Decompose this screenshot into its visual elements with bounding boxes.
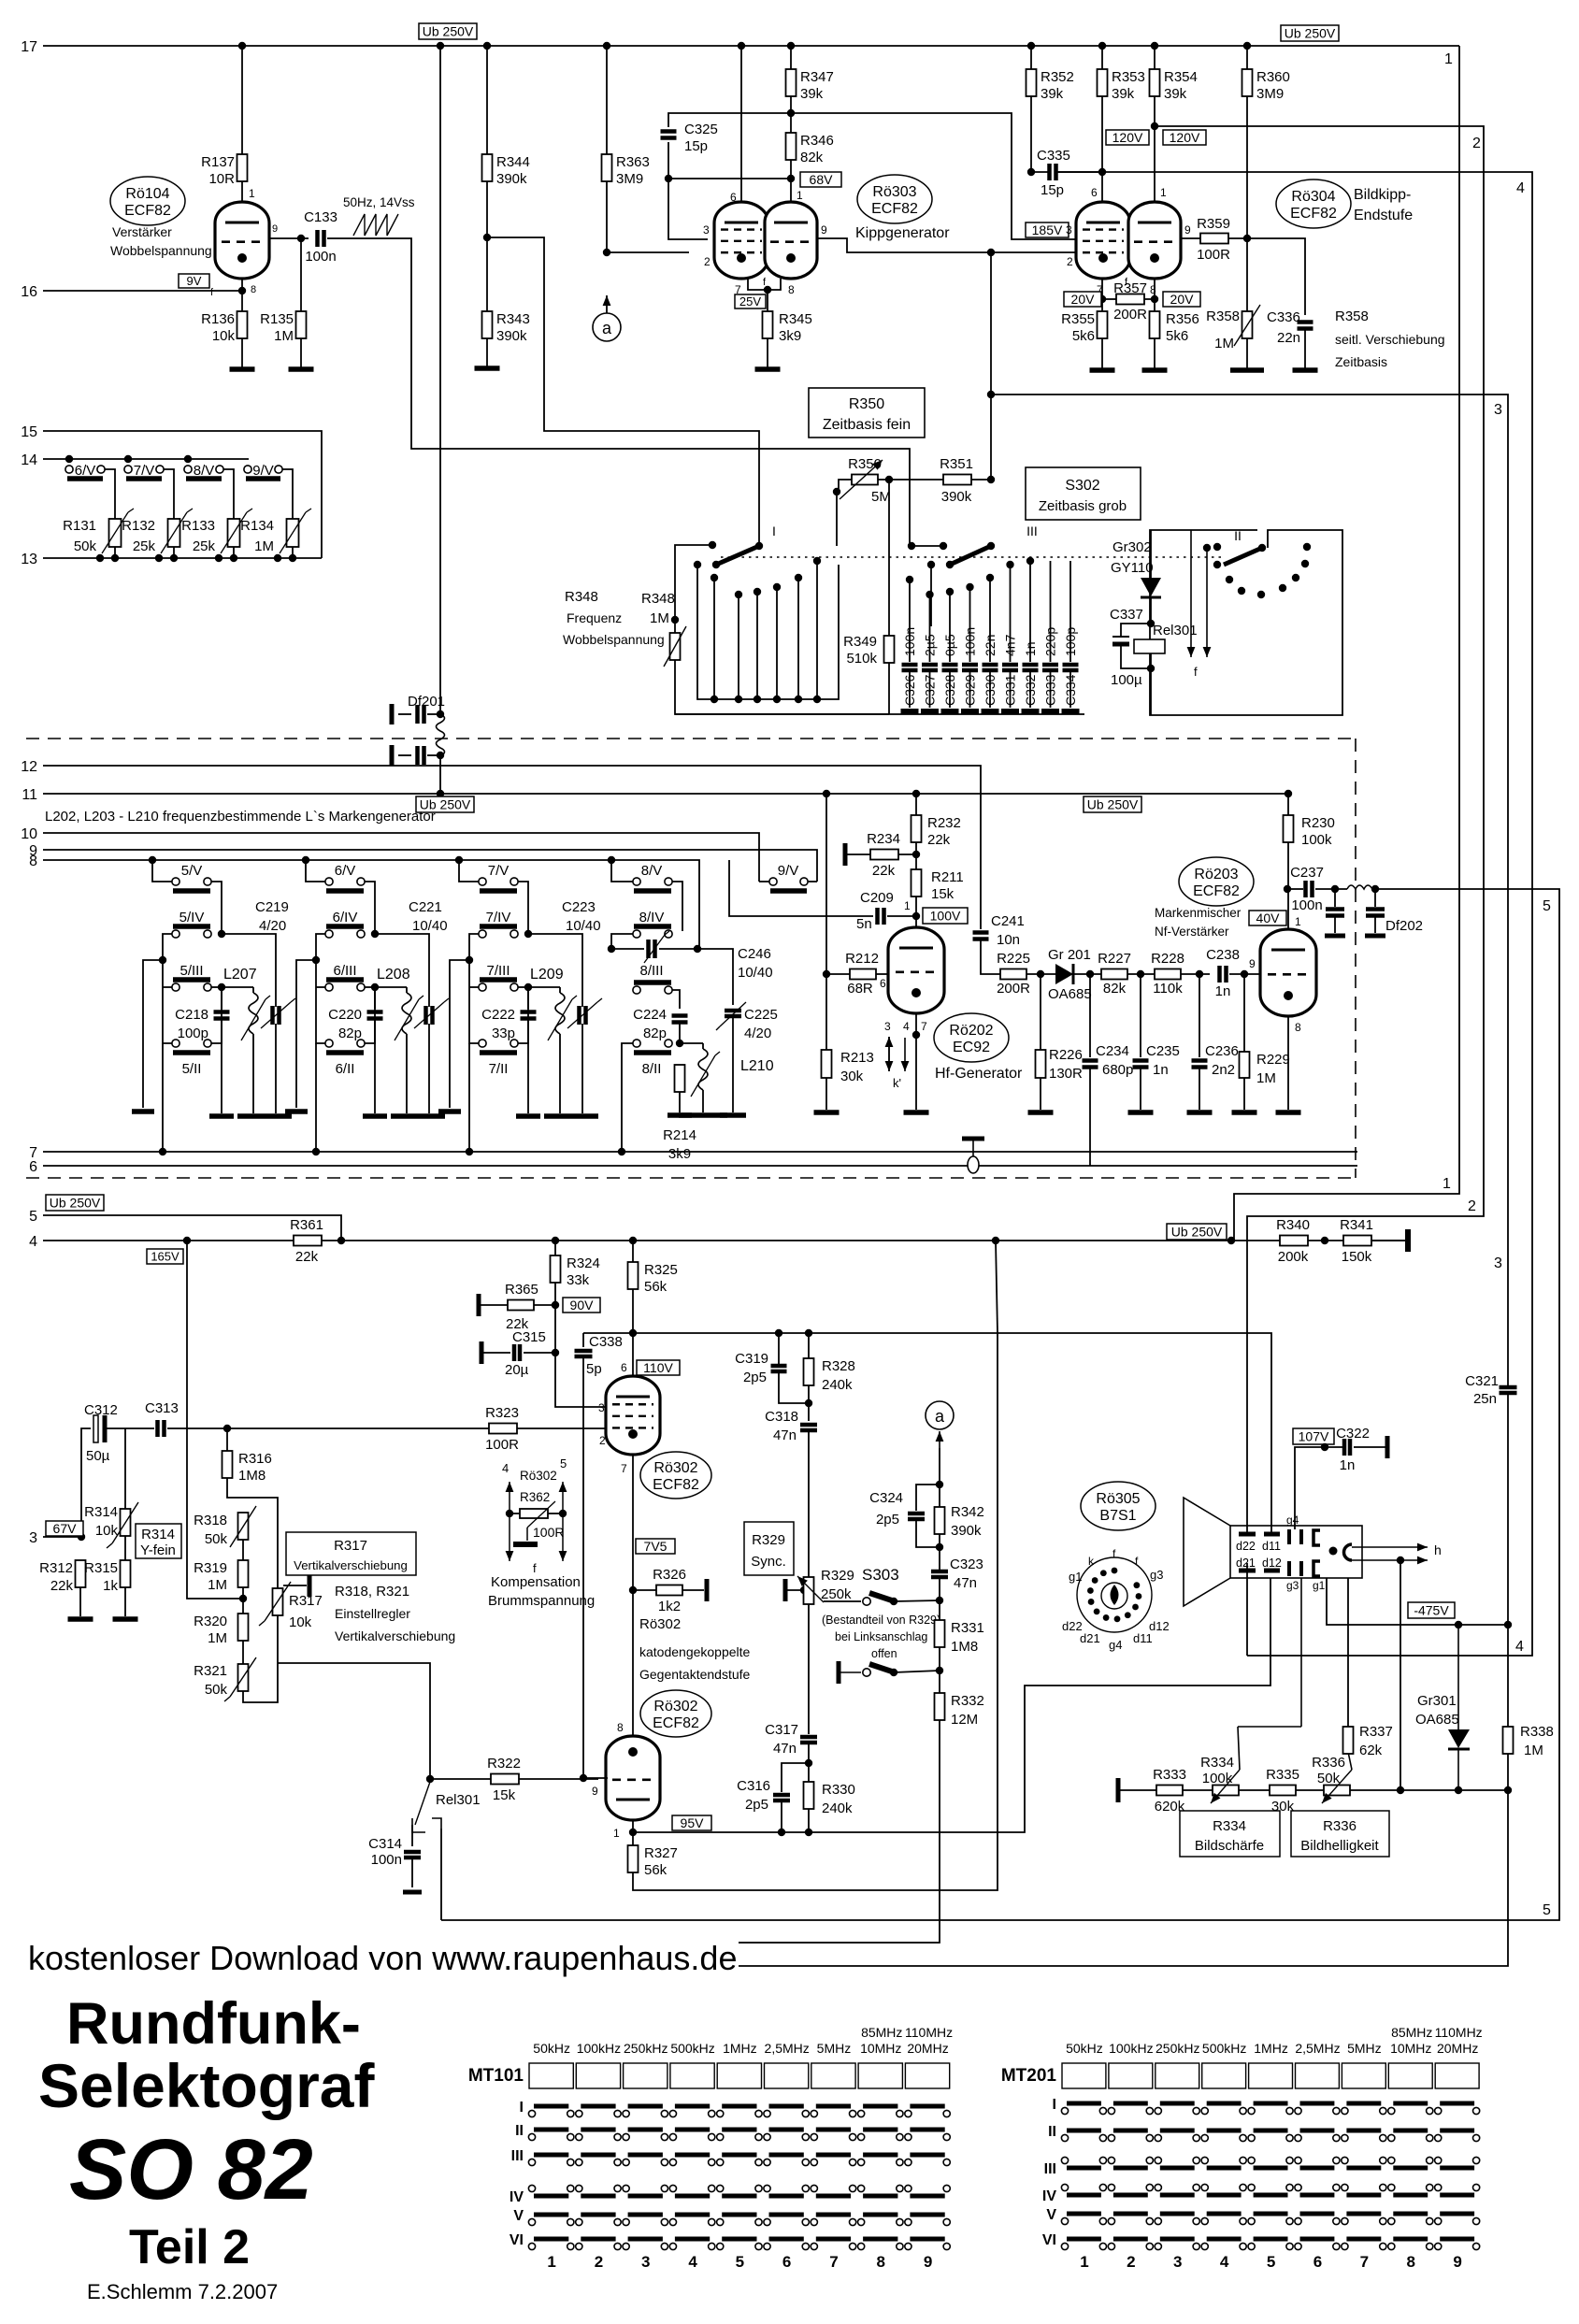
svg-text:33k: 33k bbox=[567, 1272, 590, 1288]
svg-text:7/V: 7/V bbox=[488, 863, 510, 879]
svg-text:Vertikalverschiebung: Vertikalverschiebung bbox=[294, 1558, 408, 1572]
svg-text:g1: g1 bbox=[1313, 1579, 1326, 1592]
svg-text:Brummspannung: Brummspannung bbox=[488, 1593, 595, 1609]
svg-text:R319: R319 bbox=[194, 1560, 227, 1576]
svg-text:III: III bbox=[1026, 524, 1038, 538]
svg-text:6: 6 bbox=[29, 1159, 37, 1175]
svg-text:50kHz: 50kHz bbox=[1066, 2041, 1103, 2056]
svg-text:100n: 100n bbox=[305, 249, 336, 265]
svg-text:R228: R228 bbox=[1151, 951, 1184, 967]
svg-text:100V: 100V bbox=[930, 909, 961, 924]
svg-text:C315: C315 bbox=[512, 1329, 546, 1345]
svg-text:7: 7 bbox=[829, 2253, 838, 2271]
svg-text:Gr 201: Gr 201 bbox=[1048, 947, 1091, 963]
svg-text:1: 1 bbox=[1444, 51, 1453, 67]
svg-text:VI: VI bbox=[1042, 2232, 1056, 2248]
svg-text:C235: C235 bbox=[1146, 1043, 1180, 1059]
svg-text:9/V: 9/V bbox=[778, 863, 799, 879]
svg-text:C331: C331 bbox=[1003, 674, 1018, 706]
svg-text:50Hz, 14Vss: 50Hz, 14Vss bbox=[343, 195, 415, 209]
svg-text:120V: 120V bbox=[1170, 130, 1200, 145]
svg-text:5k6: 5k6 bbox=[1072, 328, 1095, 344]
svg-text:1n: 1n bbox=[1153, 1062, 1169, 1078]
svg-text:Bildhelligkeit: Bildhelligkeit bbox=[1300, 1838, 1379, 1854]
svg-text:25k: 25k bbox=[133, 538, 156, 554]
svg-text:R322: R322 bbox=[487, 1756, 521, 1772]
svg-text:1: 1 bbox=[1443, 1176, 1451, 1192]
svg-text:25k: 25k bbox=[193, 538, 216, 554]
svg-text:GY110: GY110 bbox=[1111, 560, 1154, 576]
svg-text:C222: C222 bbox=[481, 1007, 515, 1023]
svg-text:3: 3 bbox=[29, 1530, 37, 1546]
svg-text:9: 9 bbox=[1184, 223, 1191, 237]
svg-text:Rö303: Rö303 bbox=[872, 184, 916, 200]
svg-text:30k: 30k bbox=[840, 1069, 864, 1084]
svg-text:C246: C246 bbox=[738, 946, 771, 962]
svg-text:R134: R134 bbox=[240, 518, 274, 534]
svg-text:6: 6 bbox=[880, 977, 886, 990]
svg-text:L210: L210 bbox=[740, 1058, 774, 1074]
svg-text:C329: C329 bbox=[963, 674, 978, 706]
svg-text:9: 9 bbox=[272, 223, 278, 235]
svg-text:20MHz: 20MHz bbox=[907, 2041, 948, 2056]
svg-text:MT201: MT201 bbox=[1001, 2066, 1057, 2086]
svg-text:MT101: MT101 bbox=[468, 2066, 524, 2086]
svg-text:R358: R358 bbox=[1206, 308, 1240, 324]
svg-text:14: 14 bbox=[21, 452, 37, 468]
svg-text:C238: C238 bbox=[1206, 947, 1240, 963]
svg-text:5/V: 5/V bbox=[181, 863, 203, 879]
svg-text:E.Schlemm 7.2.2007: E.Schlemm 7.2.2007 bbox=[87, 2280, 278, 2303]
svg-text:5/IV: 5/IV bbox=[179, 910, 205, 925]
svg-text:50k: 50k bbox=[74, 538, 97, 554]
svg-text:C333: C333 bbox=[1043, 674, 1058, 706]
svg-text:C321: C321 bbox=[1465, 1373, 1499, 1389]
svg-text:100n: 100n bbox=[963, 627, 978, 656]
svg-text:2: 2 bbox=[1067, 255, 1073, 268]
svg-text:33p: 33p bbox=[492, 1026, 515, 1041]
svg-text:(Bestandteil von R329): (Bestandteil von R329) bbox=[822, 1614, 940, 1627]
svg-text:6/III: 6/III bbox=[333, 963, 356, 979]
svg-text:R212: R212 bbox=[845, 951, 879, 967]
svg-text:9: 9 bbox=[924, 2253, 932, 2271]
svg-text:100p: 100p bbox=[1063, 627, 1078, 656]
svg-text:bei Linksanschlag: bei Linksanschlag bbox=[835, 1630, 927, 1643]
svg-text:82k: 82k bbox=[800, 150, 824, 165]
svg-text:Df201: Df201 bbox=[408, 694, 445, 710]
svg-text:d11: d11 bbox=[1262, 1540, 1281, 1553]
svg-text:R315: R315 bbox=[84, 1560, 118, 1576]
svg-text:250kHz: 250kHz bbox=[1156, 2041, 1199, 2056]
svg-text:R333: R333 bbox=[1153, 1767, 1186, 1783]
svg-text:R359: R359 bbox=[1197, 216, 1230, 232]
svg-text:R345: R345 bbox=[779, 311, 812, 327]
svg-text:R329: R329 bbox=[752, 1532, 785, 1548]
svg-text:a: a bbox=[935, 1407, 945, 1426]
svg-text:1M: 1M bbox=[1524, 1743, 1543, 1758]
svg-text:R227: R227 bbox=[1098, 951, 1131, 967]
svg-text:50k: 50k bbox=[1317, 1771, 1341, 1786]
svg-text:Markenmischer: Markenmischer bbox=[1155, 906, 1242, 920]
svg-text:R344: R344 bbox=[496, 154, 530, 170]
svg-text:Frequenz: Frequenz bbox=[567, 610, 622, 625]
svg-text:R133: R133 bbox=[181, 518, 215, 534]
svg-text:1M: 1M bbox=[1214, 336, 1234, 351]
svg-text:5: 5 bbox=[1543, 898, 1551, 914]
svg-text:C330: C330 bbox=[983, 674, 998, 706]
svg-text:8/IV: 8/IV bbox=[639, 910, 665, 925]
svg-text:100n: 100n bbox=[1291, 897, 1322, 913]
svg-text:g3: g3 bbox=[1286, 1579, 1299, 1592]
svg-text:100R: 100R bbox=[533, 1525, 564, 1540]
svg-text:Teil 2: Teil 2 bbox=[129, 2220, 250, 2274]
svg-text:R357: R357 bbox=[1113, 280, 1147, 296]
svg-text:3: 3 bbox=[884, 1020, 891, 1033]
svg-text:10MHz: 10MHz bbox=[860, 2041, 901, 2056]
svg-text:Zeitbasis fein: Zeitbasis fein bbox=[823, 417, 911, 433]
svg-text:Rö304: Rö304 bbox=[1291, 189, 1335, 205]
svg-text:9: 9 bbox=[592, 1785, 598, 1798]
svg-text:68V: 68V bbox=[810, 172, 834, 187]
svg-text:L208: L208 bbox=[377, 967, 410, 983]
svg-text:1M8: 1M8 bbox=[951, 1639, 978, 1655]
svg-text:2: 2 bbox=[599, 1434, 606, 1447]
svg-text:1M: 1M bbox=[650, 610, 669, 626]
svg-text:R330: R330 bbox=[822, 1782, 855, 1798]
svg-text:C218: C218 bbox=[175, 1007, 208, 1023]
svg-text:R351: R351 bbox=[940, 456, 973, 472]
svg-text:15: 15 bbox=[21, 424, 37, 440]
svg-text:C223: C223 bbox=[562, 899, 596, 915]
svg-text:500kHz: 500kHz bbox=[670, 2041, 714, 2056]
svg-text:56k: 56k bbox=[644, 1279, 667, 1295]
svg-text:7: 7 bbox=[921, 1020, 927, 1033]
svg-text:R314: R314 bbox=[84, 1504, 118, 1520]
svg-text:I: I bbox=[772, 524, 776, 538]
svg-text:3M9: 3M9 bbox=[1256, 86, 1284, 102]
svg-text:500kHz: 500kHz bbox=[1202, 2041, 1246, 2056]
svg-text:6: 6 bbox=[621, 1361, 627, 1374]
svg-text:10n: 10n bbox=[997, 932, 1020, 948]
svg-text:R232: R232 bbox=[927, 815, 961, 831]
svg-text:R353: R353 bbox=[1112, 69, 1145, 85]
svg-text:1k: 1k bbox=[103, 1578, 118, 1594]
svg-text:110MHz: 110MHz bbox=[1435, 2025, 1483, 2040]
svg-text:d21: d21 bbox=[1236, 1557, 1256, 1570]
svg-text:2,5MHz: 2,5MHz bbox=[765, 2041, 810, 2056]
svg-text:13: 13 bbox=[21, 552, 37, 567]
svg-text:3: 3 bbox=[598, 1401, 605, 1414]
svg-text:100R: 100R bbox=[485, 1437, 519, 1453]
svg-text:3k9: 3k9 bbox=[779, 328, 801, 344]
svg-text:R317: R317 bbox=[289, 1593, 323, 1609]
svg-text:Gr301: Gr301 bbox=[1417, 1693, 1457, 1709]
svg-text:110MHz: 110MHz bbox=[905, 2025, 953, 2040]
svg-text:C241: C241 bbox=[991, 913, 1025, 929]
svg-text:kostenloser Download von www.r: kostenloser Download von www.raupenhaus.… bbox=[28, 1939, 737, 1977]
svg-text:7/II: 7/II bbox=[489, 1061, 509, 1077]
svg-text:8/V: 8/V bbox=[641, 863, 663, 879]
svg-text:22n: 22n bbox=[1277, 330, 1300, 346]
svg-text:V: V bbox=[1046, 2207, 1056, 2223]
svg-text:1MHz: 1MHz bbox=[723, 2041, 757, 2056]
svg-text:-475V: -475V bbox=[1414, 1603, 1449, 1618]
svg-text:R350: R350 bbox=[849, 396, 884, 412]
svg-text:Gr302: Gr302 bbox=[1112, 539, 1152, 555]
svg-text:Einstellregler: Einstellregler bbox=[335, 1606, 410, 1621]
svg-text:g3: g3 bbox=[1150, 1568, 1163, 1582]
svg-text:10/40: 10/40 bbox=[412, 918, 448, 934]
svg-text:12M: 12M bbox=[951, 1712, 978, 1728]
svg-text:1: 1 bbox=[1080, 2253, 1088, 2271]
svg-text:9: 9 bbox=[1249, 957, 1256, 970]
svg-text:8/II: 8/II bbox=[642, 1061, 662, 1077]
svg-text:Rö302: Rö302 bbox=[520, 1469, 557, 1483]
svg-text:R363: R363 bbox=[616, 154, 650, 170]
svg-text:II: II bbox=[515, 2123, 524, 2139]
svg-text:R132: R132 bbox=[122, 518, 155, 534]
svg-text:R341: R341 bbox=[1340, 1217, 1373, 1233]
svg-text:5M: 5M bbox=[871, 489, 891, 505]
svg-text:250k: 250k bbox=[821, 1586, 852, 1602]
svg-text:C318: C318 bbox=[765, 1409, 798, 1425]
svg-text:5: 5 bbox=[29, 1209, 37, 1225]
svg-text:3: 3 bbox=[1173, 2253, 1182, 2271]
svg-text:50kHz: 50kHz bbox=[533, 2041, 570, 2056]
svg-text:Rundfunk-: Rundfunk- bbox=[66, 1991, 361, 2057]
svg-text:Zeitbasis grob: Zeitbasis grob bbox=[1039, 498, 1127, 514]
svg-text:0µ5: 0µ5 bbox=[942, 634, 957, 656]
svg-text:Wobbelspannung: Wobbelspannung bbox=[563, 632, 665, 647]
svg-text:III: III bbox=[1044, 2161, 1056, 2177]
svg-text:OA685: OA685 bbox=[1415, 1712, 1459, 1728]
svg-text:8: 8 bbox=[251, 284, 256, 295]
svg-text:390k: 390k bbox=[496, 328, 527, 344]
svg-text:R229: R229 bbox=[1256, 1052, 1290, 1068]
svg-text:2: 2 bbox=[704, 255, 711, 268]
svg-text:R136: R136 bbox=[201, 311, 235, 327]
svg-text:Zeitbasis: Zeitbasis bbox=[1335, 354, 1387, 369]
svg-text:8: 8 bbox=[617, 1721, 624, 1734]
svg-text:R318, R321: R318, R321 bbox=[335, 1584, 409, 1600]
svg-text:25n: 25n bbox=[1473, 1391, 1497, 1407]
svg-text:100n: 100n bbox=[902, 627, 917, 656]
svg-text:680p: 680p bbox=[1102, 1062, 1133, 1078]
svg-text:R325: R325 bbox=[644, 1262, 678, 1278]
svg-text:R317: R317 bbox=[334, 1538, 367, 1554]
svg-text:R338: R338 bbox=[1520, 1724, 1554, 1740]
svg-text:Rö302: Rö302 bbox=[653, 1699, 697, 1714]
svg-text:8: 8 bbox=[1150, 283, 1156, 296]
svg-text:185V: 185V bbox=[1032, 222, 1063, 237]
svg-text:67V: 67V bbox=[53, 1521, 78, 1536]
svg-text:3: 3 bbox=[703, 223, 710, 237]
svg-text:R230: R230 bbox=[1301, 815, 1335, 831]
svg-text:6/V: 6/V bbox=[335, 863, 356, 879]
svg-text:R226: R226 bbox=[1049, 1047, 1083, 1063]
svg-text:h: h bbox=[1434, 1542, 1442, 1557]
svg-text:2n2: 2n2 bbox=[1212, 1062, 1235, 1078]
svg-text:C334: C334 bbox=[1063, 674, 1078, 706]
svg-text:ECF82: ECF82 bbox=[653, 1477, 699, 1493]
svg-text:R211: R211 bbox=[931, 869, 964, 885]
svg-text:III: III bbox=[511, 2148, 524, 2164]
svg-text:C319: C319 bbox=[735, 1351, 768, 1367]
svg-text:2p5: 2p5 bbox=[745, 1797, 768, 1813]
svg-text:1M: 1M bbox=[254, 538, 274, 554]
svg-text:5MHz: 5MHz bbox=[817, 2041, 852, 2056]
svg-text:Wobbelspannung: Wobbelspannung bbox=[110, 243, 212, 258]
svg-text:22k: 22k bbox=[927, 832, 951, 848]
svg-text:5p: 5p bbox=[586, 1361, 602, 1377]
svg-text:85MHz: 85MHz bbox=[861, 2025, 902, 2040]
svg-text:C225: C225 bbox=[744, 1007, 778, 1023]
svg-text:56k: 56k bbox=[644, 1862, 667, 1878]
svg-text:R347: R347 bbox=[800, 69, 834, 85]
svg-text:8: 8 bbox=[877, 2253, 885, 2271]
svg-text:R352: R352 bbox=[1041, 69, 1074, 85]
svg-text:C237: C237 bbox=[1290, 865, 1324, 881]
svg-text:4n7: 4n7 bbox=[1003, 634, 1018, 656]
svg-text:R332: R332 bbox=[951, 1693, 984, 1709]
svg-text:3: 3 bbox=[1066, 223, 1072, 237]
svg-text:6/II: 6/II bbox=[336, 1061, 355, 1077]
svg-text:C316: C316 bbox=[737, 1778, 770, 1794]
svg-text:C324: C324 bbox=[869, 1490, 903, 1506]
svg-text:Rö302: Rö302 bbox=[653, 1460, 697, 1476]
svg-text:1M: 1M bbox=[208, 1630, 227, 1646]
svg-text:7: 7 bbox=[621, 1462, 627, 1475]
svg-text:R137: R137 bbox=[201, 154, 235, 170]
svg-text:C312: C312 bbox=[84, 1402, 118, 1418]
svg-text:seitl. Verschiebung: seitl. Verschiebung bbox=[1335, 332, 1445, 347]
svg-text:250kHz: 250kHz bbox=[624, 2041, 667, 2056]
svg-text:1: 1 bbox=[613, 1827, 620, 1840]
svg-text:17: 17 bbox=[21, 39, 37, 55]
svg-text:I: I bbox=[1053, 2097, 1056, 2113]
svg-text:Endstufe: Endstufe bbox=[1354, 208, 1413, 223]
svg-text:10: 10 bbox=[21, 826, 37, 842]
svg-text:390k: 390k bbox=[941, 489, 972, 505]
svg-text:200R: 200R bbox=[1113, 307, 1147, 323]
svg-text:Bildschärfe: Bildschärfe bbox=[1195, 1838, 1264, 1854]
svg-text:47n: 47n bbox=[954, 1575, 977, 1591]
svg-text:Ub 250V: Ub 250V bbox=[1087, 797, 1139, 812]
svg-text:4: 4 bbox=[1516, 180, 1525, 196]
svg-text:1M8: 1M8 bbox=[238, 1468, 266, 1484]
svg-text:22k: 22k bbox=[50, 1578, 74, 1594]
svg-text:R234: R234 bbox=[867, 831, 900, 847]
svg-text:10/40: 10/40 bbox=[566, 918, 601, 934]
svg-text:R348: R348 bbox=[565, 589, 598, 605]
svg-text:C314: C314 bbox=[368, 1836, 402, 1852]
svg-text:C336: C336 bbox=[1267, 309, 1300, 325]
svg-text:6: 6 bbox=[1313, 2253, 1322, 2271]
svg-text:Ub 250V: Ub 250V bbox=[1171, 1225, 1223, 1240]
svg-text:C219: C219 bbox=[255, 899, 289, 915]
svg-text:R321: R321 bbox=[194, 1663, 227, 1679]
svg-text:R354: R354 bbox=[1164, 69, 1198, 85]
svg-text:C327: C327 bbox=[923, 674, 938, 706]
svg-text:22n: 22n bbox=[983, 635, 998, 656]
svg-text:82k: 82k bbox=[1103, 981, 1127, 997]
svg-text:C322: C322 bbox=[1336, 1426, 1370, 1442]
svg-text:R312: R312 bbox=[39, 1560, 73, 1576]
svg-text:100n: 100n bbox=[371, 1852, 402, 1868]
svg-text:Kippgenerator: Kippgenerator bbox=[855, 225, 950, 241]
svg-text:R334: R334 bbox=[1213, 1818, 1246, 1834]
svg-text:39k: 39k bbox=[1164, 86, 1187, 102]
svg-text:4/20: 4/20 bbox=[744, 1026, 771, 1041]
svg-text:5MHz: 5MHz bbox=[1347, 2041, 1382, 2056]
svg-text:4: 4 bbox=[1515, 1639, 1524, 1655]
svg-text:39k: 39k bbox=[1041, 86, 1064, 102]
svg-text:Selektograf: Selektograf bbox=[38, 2051, 375, 2120]
svg-text:S302: S302 bbox=[1065, 478, 1099, 494]
svg-text:110V: 110V bbox=[643, 1360, 673, 1375]
svg-text:ECF82: ECF82 bbox=[653, 1715, 699, 1731]
svg-text:R342: R342 bbox=[951, 1504, 984, 1520]
svg-text:47n: 47n bbox=[773, 1427, 797, 1443]
svg-text:R318: R318 bbox=[194, 1513, 227, 1528]
svg-text:240k: 240k bbox=[822, 1377, 853, 1393]
svg-text:100k: 100k bbox=[1301, 832, 1332, 848]
svg-text:C338: C338 bbox=[589, 1334, 623, 1350]
svg-text:2p5: 2p5 bbox=[743, 1370, 767, 1385]
svg-text:7/IV: 7/IV bbox=[486, 910, 511, 925]
svg-text:R350: R350 bbox=[848, 456, 882, 472]
svg-text:5k6: 5k6 bbox=[1166, 328, 1188, 344]
svg-text:R356: R356 bbox=[1166, 311, 1199, 327]
svg-text:EC92: EC92 bbox=[953, 1040, 990, 1055]
svg-text:4: 4 bbox=[903, 1020, 910, 1033]
svg-text:g4: g4 bbox=[1286, 1513, 1299, 1527]
svg-text:R346: R346 bbox=[800, 133, 834, 149]
svg-text:390k: 390k bbox=[951, 1523, 982, 1539]
svg-text:1: 1 bbox=[904, 899, 911, 912]
svg-text:9V: 9V bbox=[187, 274, 202, 288]
svg-text:Df202: Df202 bbox=[1385, 918, 1423, 934]
svg-text:9: 9 bbox=[1453, 2253, 1461, 2271]
svg-text:3k9: 3k9 bbox=[668, 1146, 691, 1162]
svg-text:Ub 250V: Ub 250V bbox=[50, 1196, 101, 1211]
svg-text:2: 2 bbox=[1468, 1198, 1476, 1214]
svg-text:5n: 5n bbox=[856, 916, 872, 932]
svg-text:5/III: 5/III bbox=[179, 963, 203, 979]
svg-text:R326: R326 bbox=[653, 1567, 686, 1583]
svg-text:R337: R337 bbox=[1359, 1724, 1393, 1740]
svg-text:Kompensation: Kompensation bbox=[491, 1574, 581, 1590]
svg-text:150k: 150k bbox=[1342, 1249, 1372, 1265]
svg-text:R327: R327 bbox=[644, 1845, 678, 1861]
svg-text:R324: R324 bbox=[567, 1255, 600, 1271]
svg-text:8/III: 8/III bbox=[639, 963, 663, 979]
svg-text:130R: 130R bbox=[1049, 1066, 1083, 1082]
svg-text:3: 3 bbox=[1494, 1255, 1502, 1271]
svg-text:3: 3 bbox=[641, 2253, 650, 2271]
svg-text:1MHz: 1MHz bbox=[1254, 2041, 1288, 2056]
svg-text:1n: 1n bbox=[1340, 1457, 1356, 1473]
svg-text:40V: 40V bbox=[1256, 911, 1281, 925]
svg-text:Gegentaktendstufe: Gegentaktendstufe bbox=[639, 1667, 751, 1682]
svg-text:90V: 90V bbox=[570, 1298, 595, 1313]
svg-text:R331: R331 bbox=[951, 1620, 984, 1636]
svg-text:offen: offen bbox=[871, 1647, 897, 1660]
svg-text:510k: 510k bbox=[846, 651, 877, 667]
svg-text:50k: 50k bbox=[205, 1682, 228, 1698]
svg-text:15k: 15k bbox=[931, 886, 955, 902]
svg-text:R348: R348 bbox=[641, 591, 675, 607]
